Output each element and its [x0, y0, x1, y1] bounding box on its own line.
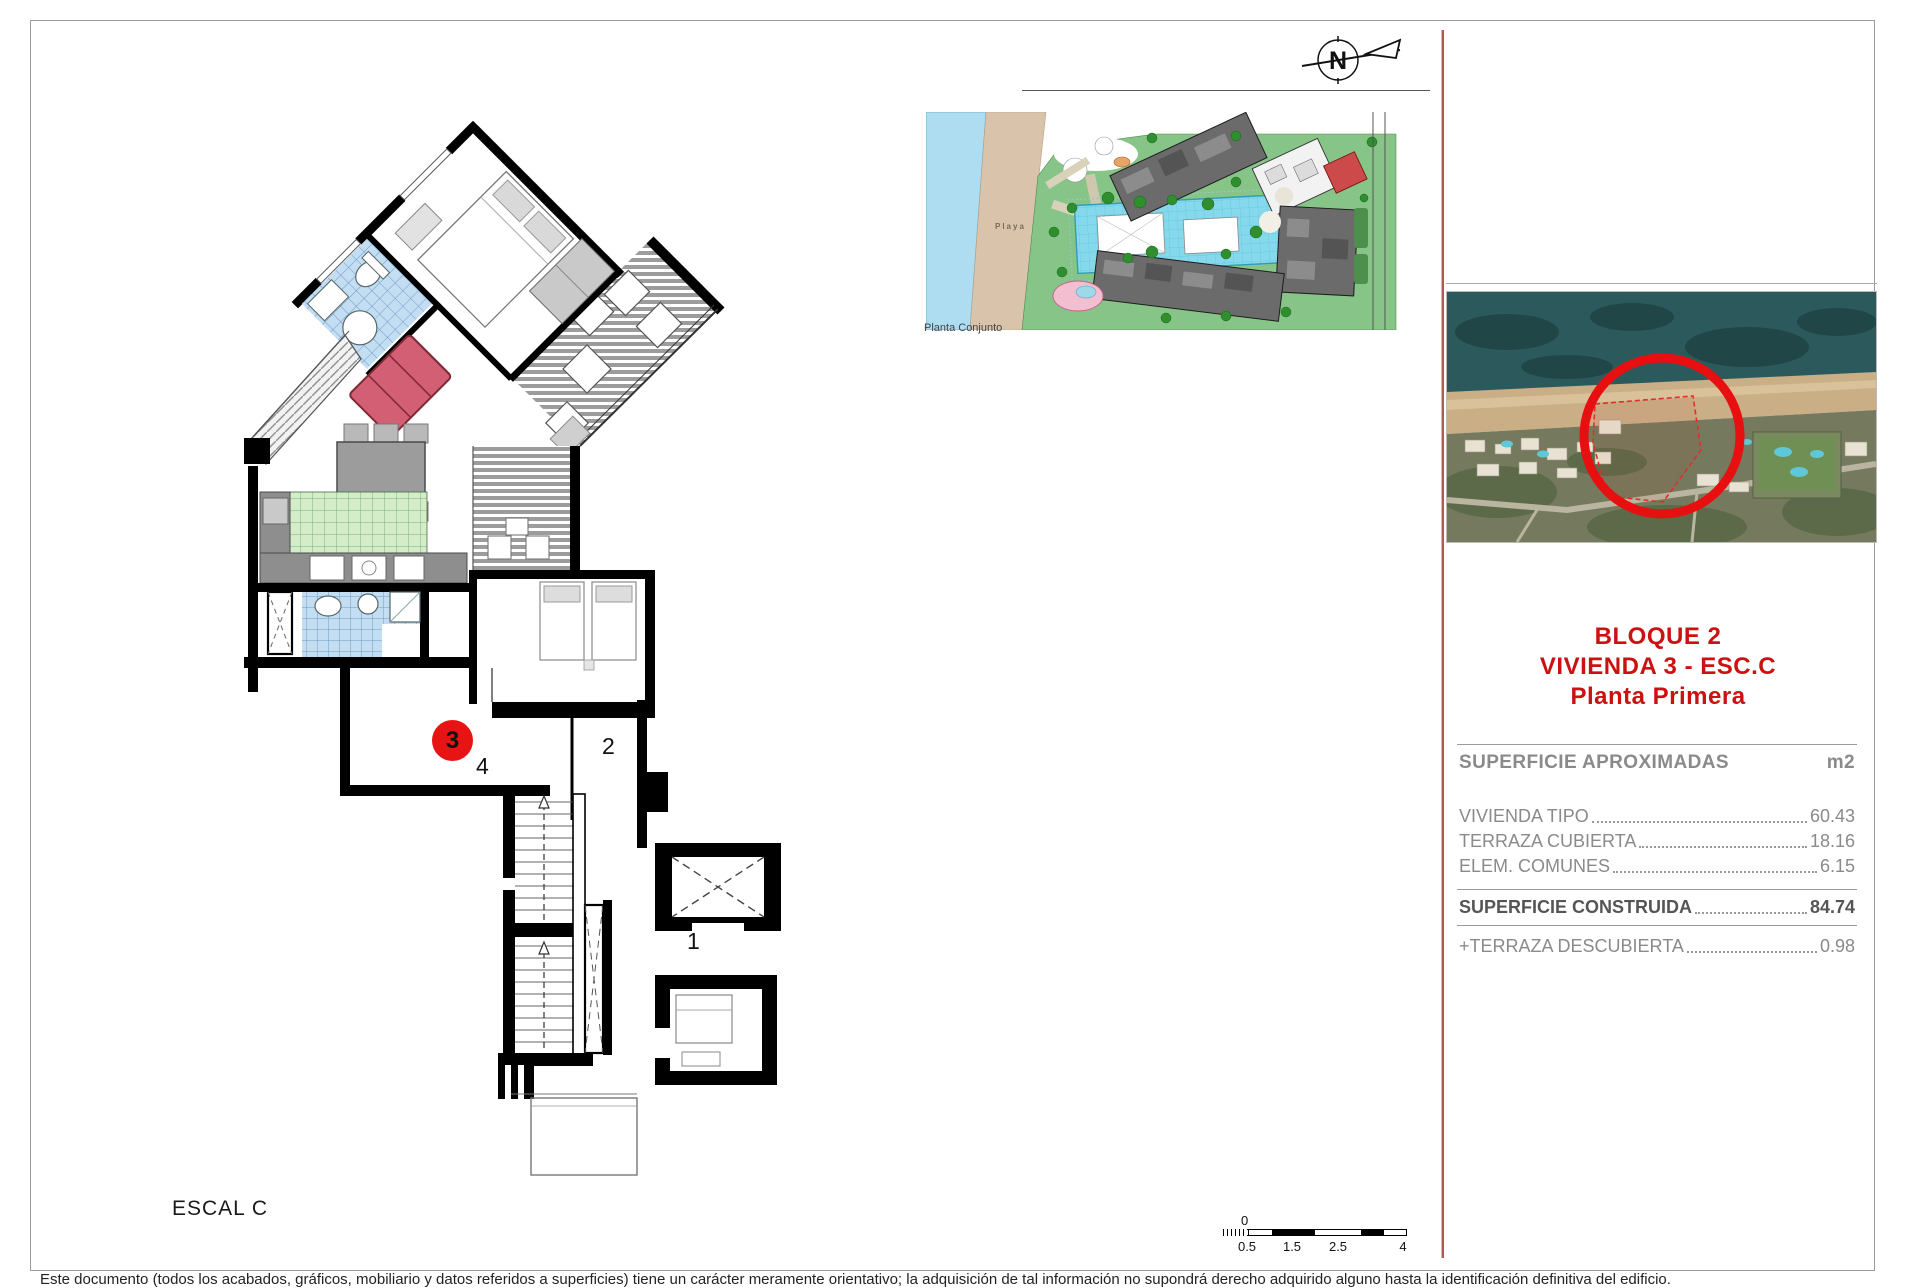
unit-1-label: 1	[687, 928, 700, 955]
scale-label: 4	[1399, 1239, 1406, 1254]
scale-label: 0.5	[1238, 1239, 1256, 1254]
extra-label: +TERRAZA DESCUBIERTA	[1459, 935, 1684, 958]
aerial-photo	[1446, 291, 1877, 543]
row-value: 6.15	[1820, 855, 1855, 878]
floor-plan-drawing	[240, 90, 820, 1200]
total-label: SUPERFICIE CONSTRUIDA	[1459, 896, 1692, 919]
site-plan-image	[926, 112, 1408, 330]
scale-zero-label: 0	[1241, 1213, 1248, 1228]
dot-leader	[1613, 871, 1817, 873]
patio-outline	[511, 1094, 637, 1175]
scale-label: 2.5	[1329, 1239, 1347, 1254]
table-row: TERRAZA CUBIERTA 18.16	[1457, 829, 1857, 854]
photo-top-rule	[1446, 283, 1877, 284]
total-value: 84.74	[1810, 896, 1855, 919]
table-extra-row: +TERRAZA DESCUBIERTA 0.98	[1457, 934, 1857, 959]
dot-leader	[1695, 912, 1807, 914]
escalera-label: ESCAL C	[172, 1197, 268, 1221]
table-row: VIVIENDA TIPO 60.43	[1457, 804, 1857, 829]
bathroom-2	[302, 592, 420, 657]
table-total-row: SUPERFICIE CONSTRUIDA 84.74	[1457, 890, 1857, 925]
table-row: ELEM. COMUNES 6.15	[1457, 854, 1857, 879]
dot-leader	[1639, 846, 1807, 848]
svg-text:N: N	[1329, 47, 1347, 75]
scale-label: 1.5	[1283, 1239, 1301, 1254]
extra-value: 0.98	[1820, 935, 1855, 958]
scale-bar-ticks	[1223, 1229, 1247, 1236]
row-label: VIVIENDA TIPO	[1459, 805, 1589, 828]
unit-2-label: 2	[602, 733, 615, 760]
kitchen	[260, 492, 467, 584]
title-line-vivienda: VIVIENDA 3 - ESC.C	[1443, 652, 1873, 682]
row-value: 18.16	[1810, 830, 1855, 853]
room-lower	[655, 975, 777, 1085]
staircase	[480, 785, 612, 1099]
unit-3-badge: 3	[432, 720, 473, 761]
title-line-bloque: BLOQUE 2	[1443, 622, 1873, 652]
row-value: 60.43	[1810, 805, 1855, 828]
scale-bar-graphic	[1223, 1229, 1407, 1236]
unit-3-label: 3	[446, 727, 459, 755]
elevator	[655, 843, 781, 933]
siteplan-caption: Planta Conjunto	[924, 322, 1002, 334]
title-block: BLOQUE 2 VIVIENDA 3 - ESC.C Planta Prime…	[1443, 622, 1873, 712]
unit-4-label: 4	[476, 753, 489, 780]
playa-label: Playa	[995, 222, 1026, 231]
row-label: ELEM. COMUNES	[1459, 855, 1610, 878]
surface-table: SUPERFICIE APROXIMADAS m2 VIVIENDA TIPO …	[1457, 744, 1857, 959]
title-line-planta: Planta Primera	[1443, 682, 1873, 712]
dot-leader	[1592, 821, 1807, 823]
bedroom-2	[469, 570, 655, 718]
terrace-mid	[473, 446, 580, 572]
dot-leader	[1687, 951, 1817, 953]
row-label: TERRAZA CUBIERTA	[1459, 830, 1636, 853]
table-unit: m2	[1827, 752, 1855, 774]
table-header: SUPERFICIE APROXIMADAS	[1459, 752, 1729, 774]
north-arrow-icon: N	[1300, 26, 1420, 96]
